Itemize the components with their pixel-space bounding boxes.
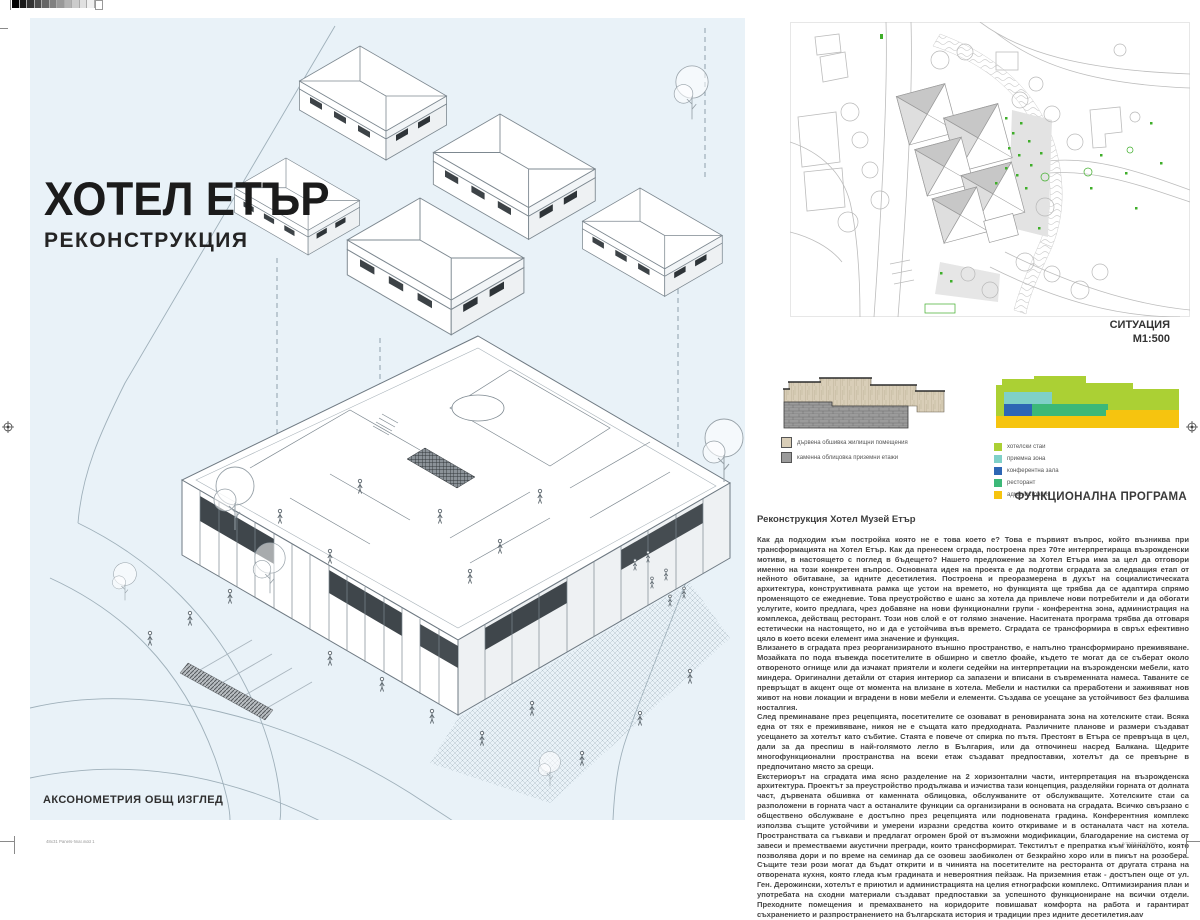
reception-swatch [994,455,1002,463]
page-subtitle: РЕКОНСТРУКЦИЯ [44,229,330,253]
restaurant-swatch [994,479,1002,487]
rooftop-court-ring [452,395,504,421]
site-plan-scale: М1:500 [1110,332,1170,346]
legend-label: хотелски стаи [1007,444,1045,450]
administration-swatch [994,491,1002,499]
legend-item: ресторант [994,479,1154,487]
page-title: ХОТЕЛ ЕТЪР [44,176,330,224]
site-plan-title: СИТУАЦИЯ [1110,318,1170,332]
crop-mark [0,28,8,29]
materials-elevation-diagram [776,372,956,434]
file-slug: 48x31 Panels-final.indd 1 [46,840,95,844]
axonometric-board: ХОТЕЛ ЕТЪР РЕКОНСТРУКЦИЯ АКСОНОМЕТРИЯ ОБ… [30,18,745,820]
site-plan-label: СИТУАЦИЯ М1:500 [1110,318,1170,347]
legend-item: дървена обшивка жилищни помещения [781,437,981,448]
timestamp-slug: 6/21/18 10:45 AM [1122,842,1156,846]
axonometric-drawing [30,18,745,820]
legend-item: конферентна зала [994,467,1154,475]
crop-mark [14,836,15,854]
wood-swatch [781,437,792,448]
registration-mark [2,421,14,433]
conference-swatch [994,467,1002,475]
zone-restaurant [1032,404,1108,416]
site-plan [790,22,1190,317]
axonometric-caption: АКСОНОМЕТРИЯ ОБЩ ИЗГЛЕД [43,794,223,806]
calibration-bar [12,0,103,8]
functional-program-label: ФУНКЦИОНАЛНА ПРОГРАМА [1015,491,1188,503]
description-paragraph: Влизането в сградата през реорганизирано… [757,643,1189,712]
project-description: Реконструкция Хотел Музей Етър Как да по… [757,514,1189,920]
zone-reception [1004,392,1052,404]
functional-program-diagram [988,372,1188,432]
legend-item: хотелски стаи [994,443,1154,451]
zone-conference [1004,404,1032,416]
stone-swatch [781,452,792,463]
crop-mark [10,0,11,10]
stone-band [784,402,908,428]
legend-label: каменна облицовка приземни етажи [797,455,898,461]
crop-mark [1186,841,1200,842]
crop-mark [0,841,14,842]
hotel-rooms-swatch [994,443,1002,451]
legend-item: приемна зона [994,455,1154,463]
materials-legend: дървена обшивка жилищни помещения каменн… [781,437,981,467]
legend-label: конферентна зала [1007,468,1059,474]
registration-mark [1186,421,1198,433]
legend-label: приемна зона [1007,456,1045,462]
crop-mark [1186,836,1187,854]
description-heading: Реконструкция Хотел Музей Етър [757,514,1189,525]
title-block: ХОТЕЛ ЕТЪР РЕКОНСТРУКЦИЯ [44,176,330,253]
legend-item: каменна облицовка приземни етажи [781,452,981,463]
legend-label: ресторант [1007,480,1035,486]
description-paragraph: След преминаване през рецепцията, посети… [757,712,1189,771]
description-paragraph: Как да подходим към постройка която не е… [757,535,1189,643]
legend-label: дървена обшивка жилищни помещения [797,440,908,446]
